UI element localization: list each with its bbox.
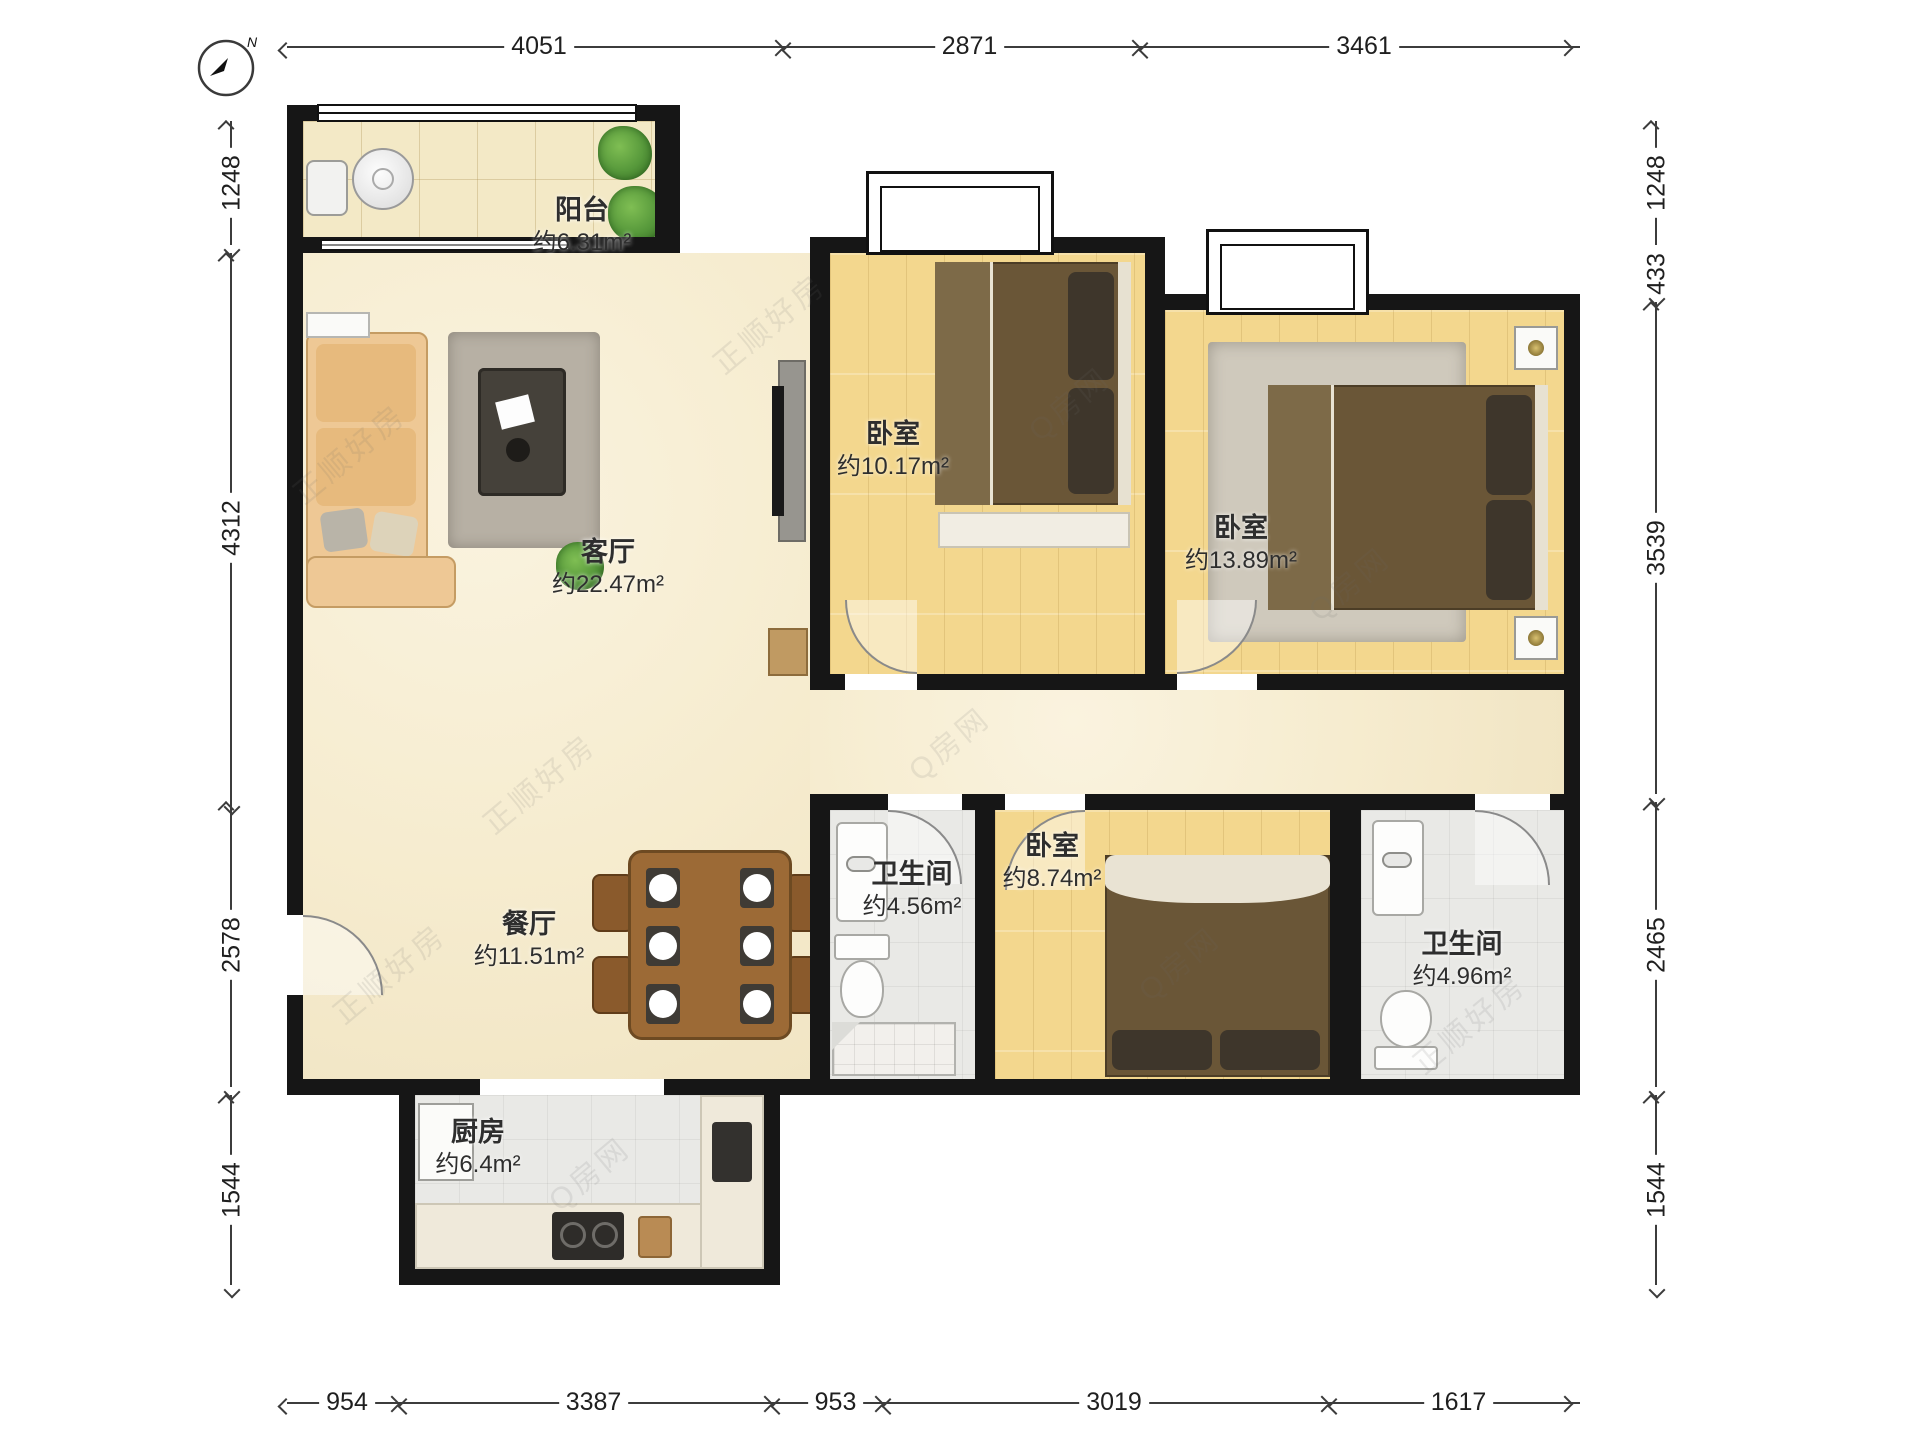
dimension-top-2: 2871 <box>791 46 1148 48</box>
dimension-label: 3461 <box>1329 32 1399 61</box>
dimension-left-2: 4312 <box>230 253 232 802</box>
wall <box>975 810 995 1079</box>
dimension-left-1: 1248 <box>230 121 232 245</box>
bedroom2-headboard <box>1535 385 1548 610</box>
wall <box>962 794 1005 810</box>
room-label-bedroom3: 卧室 约8.74m² <box>1003 830 1102 894</box>
room-area: 约6.31m² <box>533 228 632 258</box>
sofa-pillow-1 <box>319 507 368 553</box>
room-area: 约22.47m² <box>552 570 664 600</box>
dimension-bottom-1: 954 <box>287 1402 407 1404</box>
plate-6 <box>743 990 771 1018</box>
stove-burner-1 <box>560 1222 586 1248</box>
wall <box>1050 237 1145 253</box>
wall <box>1330 810 1361 1079</box>
bathroom2-faucet <box>1382 852 1412 868</box>
dimension-label: 2871 <box>935 32 1005 61</box>
wall <box>664 1079 1580 1095</box>
dimension-label: 3019 <box>1079 1388 1149 1417</box>
balcony-window <box>317 104 637 122</box>
wall <box>810 810 830 1079</box>
dimension-label: 3387 <box>559 1388 629 1417</box>
bathroom1-shower-corner <box>832 1022 860 1050</box>
plate-4 <box>743 932 771 960</box>
dimension-top-1: 4051 <box>287 46 791 48</box>
wall <box>1165 674 1177 690</box>
wall <box>655 105 680 253</box>
room-label-balcony: 阳台 约6.31m² <box>533 194 632 258</box>
cutting-board <box>638 1216 672 1258</box>
dimension-top-3: 3461 <box>1148 46 1580 48</box>
wall <box>287 105 303 915</box>
dimension-label: 1617 <box>1424 1388 1494 1417</box>
wall <box>810 794 888 810</box>
plate-2 <box>743 874 771 902</box>
room-label-bath2: 卫生间 约4.96m² <box>1413 928 1512 992</box>
floor-plan: N <box>0 0 1920 1440</box>
bedroom1-headboard <box>1118 262 1131 505</box>
room-area: 约8.74m² <box>1003 864 1102 894</box>
bedroom2-pillow-2 <box>1486 500 1532 600</box>
dimension-bottom-5: 1617 <box>1337 1402 1580 1404</box>
wall <box>1550 794 1580 810</box>
dimension-right-1: 1248 <box>1655 121 1657 245</box>
compass-north-letter: N <box>247 34 258 50</box>
entry-cabinet <box>768 628 808 676</box>
bedroom2-speaker-1-cone <box>1528 340 1544 356</box>
plate-5 <box>649 990 677 1018</box>
room-name: 卧室 <box>1003 830 1102 864</box>
bathroom1-toilet-bowl <box>840 960 884 1018</box>
dimension-label: 3539 <box>1643 513 1672 583</box>
dimension-right-4: 2465 <box>1655 802 1657 1087</box>
plate-1 <box>649 874 677 902</box>
dimension-label: 433 <box>1643 246 1672 302</box>
room-area: 约4.96m² <box>1413 962 1512 992</box>
wall <box>1365 294 1580 310</box>
wall <box>1257 674 1564 690</box>
wall <box>1564 294 1580 1095</box>
dimension-label: 4312 <box>218 493 247 563</box>
room-name: 卧室 <box>837 418 949 452</box>
dimension-right-2: 433 <box>1655 253 1657 294</box>
room-label-living: 客厅 约22.47m² <box>552 536 664 600</box>
plate-3 <box>649 932 677 960</box>
washing-machine-door <box>372 168 394 190</box>
bathroom2-sink <box>1372 820 1424 916</box>
wall <box>764 1095 780 1285</box>
wall <box>917 674 1145 690</box>
dimension-label: 2578 <box>218 910 247 980</box>
stove-burner-2 <box>592 1222 618 1248</box>
dimension-left-4: 1544 <box>230 1095 232 1285</box>
wall <box>287 1079 480 1095</box>
room-name: 客厅 <box>552 536 664 570</box>
balcony-plant-1 <box>598 126 652 180</box>
wall <box>1085 794 1475 810</box>
dimension-bottom-2: 3387 <box>407 1402 780 1404</box>
dimension-label: 1544 <box>218 1155 247 1225</box>
wall <box>399 1269 780 1285</box>
room-name: 餐厅 <box>474 908 584 942</box>
dimension-left-3: 2578 <box>230 802 232 1087</box>
coffee-table <box>478 368 566 496</box>
sofa-pillow-2 <box>369 510 419 557</box>
dimension-label: 1248 <box>1643 148 1672 218</box>
wall <box>830 674 845 690</box>
bathroom1-toilet-tank <box>834 934 890 960</box>
wall <box>830 237 870 253</box>
bedroom1-dresser <box>938 512 1130 548</box>
bedroom2-pillow-1 <box>1486 395 1532 495</box>
dimension-bottom-4: 3019 <box>891 1402 1337 1404</box>
coffee-table-bowl <box>506 438 530 462</box>
kitchen-sink <box>712 1122 752 1182</box>
room-area: 约6.4m² <box>435 1150 520 1180</box>
tv-screen <box>772 386 784 516</box>
dimension-right-3: 3539 <box>1655 302 1657 794</box>
room-area: 约13.89m² <box>1185 546 1297 576</box>
wall <box>399 1095 415 1285</box>
room-area: 约10.17m² <box>837 452 949 482</box>
room-label-bath1: 卫生间 约4.56m² <box>863 858 962 922</box>
dimension-label: 2465 <box>1643 910 1672 980</box>
dimension-bottom-3: 953 <box>780 1402 891 1404</box>
bedroom3-pillow-2 <box>1220 1030 1320 1070</box>
room-label-bedroom2: 卧室 约13.89m² <box>1185 512 1297 576</box>
bedroom1-bay-window-inner <box>880 186 1040 252</box>
room-name: 卫生间 <box>863 858 962 892</box>
room-label-kitchen: 厨房 约6.4m² <box>435 1116 520 1180</box>
room-name: 阳台 <box>533 194 632 228</box>
dimension-label: 954 <box>319 1388 375 1417</box>
dimension-label: 1544 <box>1643 1155 1672 1225</box>
room-area: 约11.51m² <box>474 942 584 972</box>
dimension-right-5: 1544 <box>1655 1095 1657 1285</box>
room-name: 卧室 <box>1185 512 1297 546</box>
dimension-label: 4051 <box>504 32 574 61</box>
dimension-label: 953 <box>808 1388 864 1417</box>
bedroom3-blanket <box>1105 855 1330 903</box>
room-name: 厨房 <box>435 1116 520 1150</box>
compass-icon: N <box>190 28 266 104</box>
room-name: 卫生间 <box>1413 928 1512 962</box>
bedroom3-pillow-1 <box>1112 1030 1212 1070</box>
bedroom2-speaker-2-cone <box>1528 630 1544 646</box>
side-shelf <box>306 312 370 338</box>
balcony-basin <box>306 160 348 216</box>
room-label-bedroom1: 卧室 约10.17m² <box>837 418 949 482</box>
wall <box>1145 294 1210 310</box>
dimension-label: 1248 <box>218 148 247 218</box>
bedroom2-bay-window-inner <box>1220 244 1355 310</box>
room-area: 约4.56m² <box>863 892 962 922</box>
sofa-chaise <box>306 556 456 608</box>
room-label-dining: 餐厅 约11.51m² <box>474 908 584 972</box>
